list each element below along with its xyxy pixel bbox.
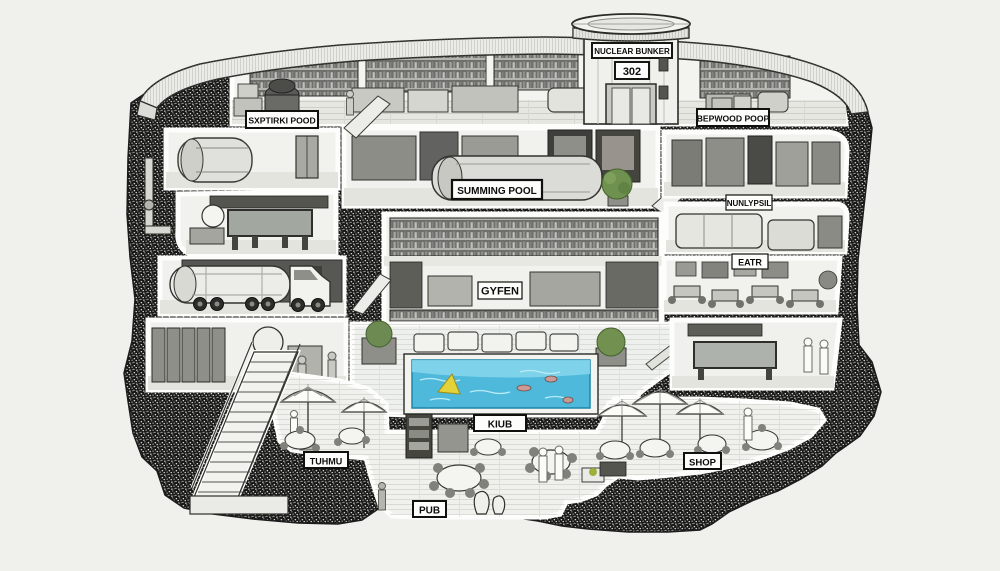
svg-text:SUMMING POOL: SUMMING POOL bbox=[457, 186, 536, 197]
svg-text:EATR: EATR bbox=[738, 258, 762, 268]
svg-text:NUNLYPSIL: NUNLYPSIL bbox=[727, 199, 772, 208]
svg-text:NUCLEAR BUNKER: NUCLEAR BUNKER bbox=[594, 47, 670, 56]
svg-text:SXPTIRKI POOD: SXPTIRKI POOD bbox=[248, 116, 315, 126]
svg-text:BEPWOOD POOP: BEPWOOD POOP bbox=[697, 114, 770, 124]
svg-text:302: 302 bbox=[623, 66, 641, 78]
svg-text:SHOP: SHOP bbox=[689, 458, 717, 469]
svg-text:GYFEN: GYFEN bbox=[481, 286, 519, 298]
svg-text:TUHMU: TUHMU bbox=[310, 457, 343, 467]
svg-text:PUB: PUB bbox=[419, 506, 440, 517]
svg-text:KIUB: KIUB bbox=[488, 420, 512, 431]
